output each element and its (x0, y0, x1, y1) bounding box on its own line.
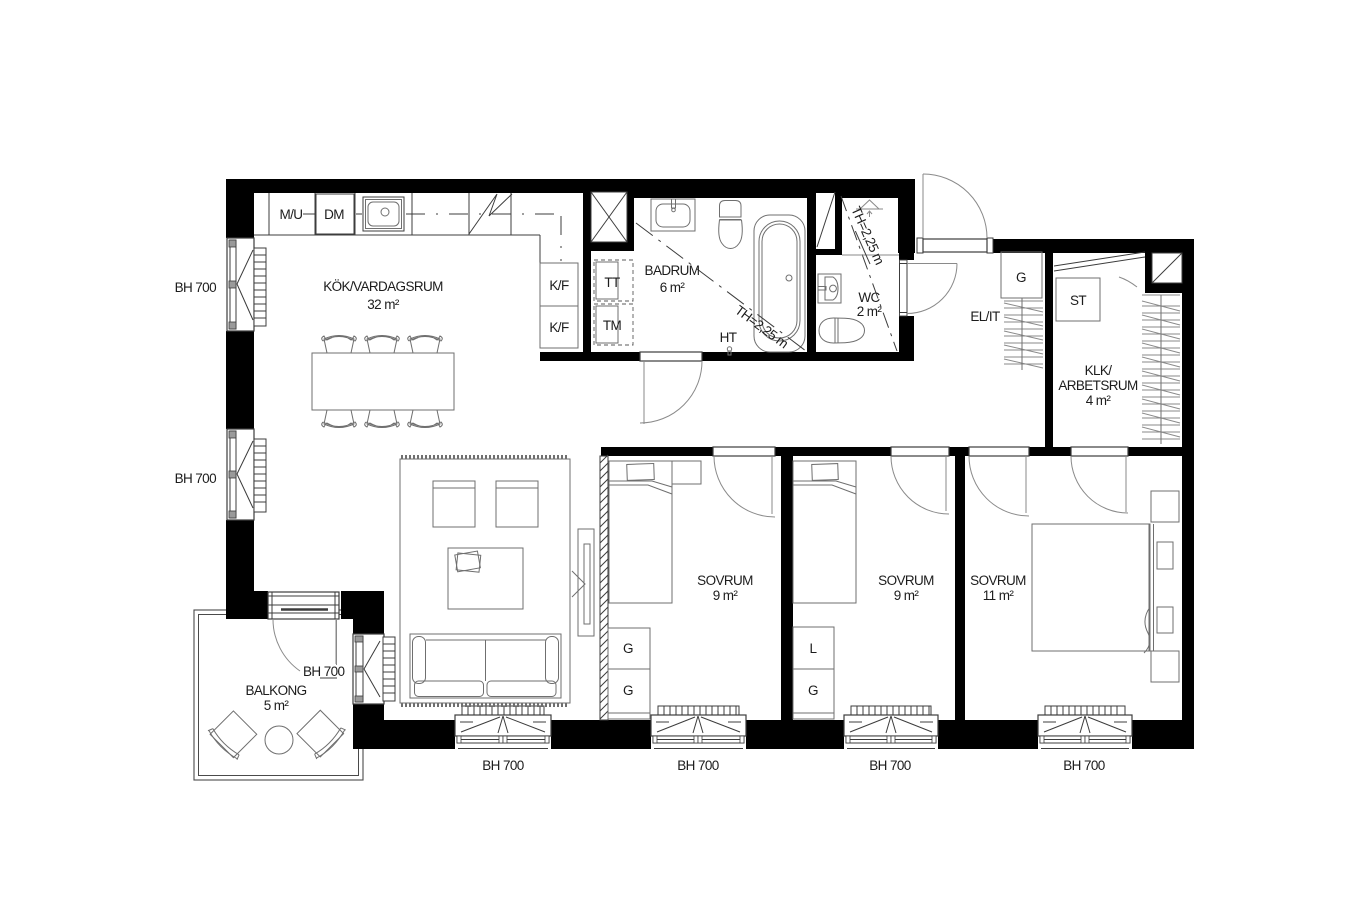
svg-text:M/U: M/U (280, 207, 303, 222)
svg-text:SOVRUM: SOVRUM (970, 573, 1026, 588)
svg-text:BH 700: BH 700 (175, 471, 217, 486)
svg-text:HT: HT (720, 330, 737, 345)
svg-text:G: G (623, 683, 633, 698)
svg-text:32 m²: 32 m² (367, 297, 400, 312)
svg-text:K/F: K/F (549, 278, 569, 293)
svg-text:6 m²: 6 m² (660, 280, 686, 295)
svg-text:BH 700: BH 700 (677, 758, 719, 773)
svg-text:DM: DM (324, 207, 344, 222)
svg-text:SOVRUM: SOVRUM (697, 573, 753, 588)
svg-text:ST: ST (1070, 293, 1086, 308)
svg-text:TM: TM (603, 318, 622, 333)
svg-text:KÖK/VARDAGSRUM: KÖK/VARDAGSRUM (323, 279, 443, 294)
svg-text:BH 700: BH 700 (303, 664, 345, 679)
svg-text:BH 700: BH 700 (869, 758, 911, 773)
svg-text:2 m²: 2 m² (857, 304, 883, 319)
svg-text:KLK/: KLK/ (1085, 363, 1113, 378)
svg-text:BADRUM: BADRUM (645, 263, 700, 278)
svg-text:11 m²: 11 m² (983, 588, 1015, 603)
svg-text:5 m²: 5 m² (264, 698, 290, 713)
svg-text:BH 700: BH 700 (1063, 758, 1105, 773)
svg-text:4 m²: 4 m² (1086, 393, 1112, 408)
svg-text:G: G (808, 683, 818, 698)
svg-text:L: L (810, 641, 818, 656)
svg-text:G: G (623, 641, 633, 656)
svg-text:K/F: K/F (549, 320, 569, 335)
svg-text:EL/IT: EL/IT (970, 309, 1000, 324)
svg-text:BH 700: BH 700 (175, 280, 217, 295)
svg-text:9 m²: 9 m² (713, 588, 739, 603)
svg-text:ARBETSRUM: ARBETSRUM (1058, 378, 1138, 393)
svg-text:BH 700: BH 700 (482, 758, 524, 773)
svg-text:SOVRUM: SOVRUM (878, 573, 934, 588)
svg-text:TT: TT (604, 275, 620, 290)
svg-text:G: G (1016, 270, 1026, 285)
svg-text:9 m²: 9 m² (894, 588, 920, 603)
svg-text:WC: WC (858, 290, 880, 305)
svg-text:BALKONG: BALKONG (245, 683, 306, 698)
